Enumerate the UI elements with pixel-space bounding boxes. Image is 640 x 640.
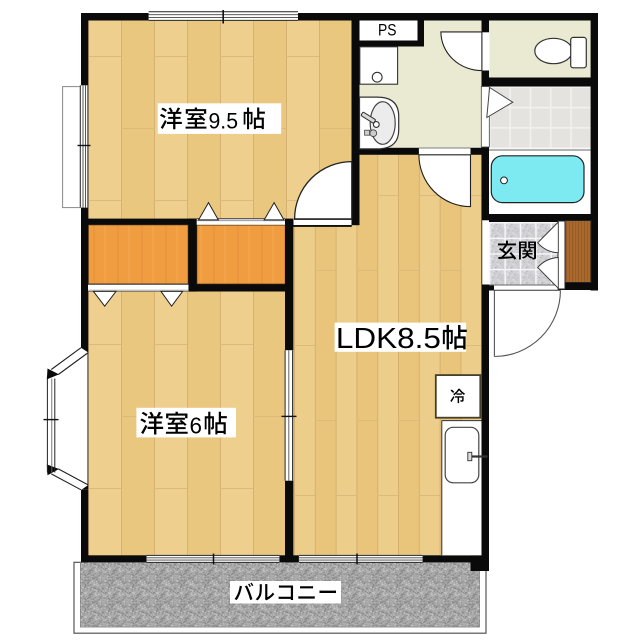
svg-text:9.5: 9.5: [209, 108, 239, 133]
svg-text:PS: PS: [378, 22, 397, 40]
svg-text:LDK8.5: LDK8.5: [336, 323, 441, 355]
svg-text:6: 6: [190, 412, 203, 438]
